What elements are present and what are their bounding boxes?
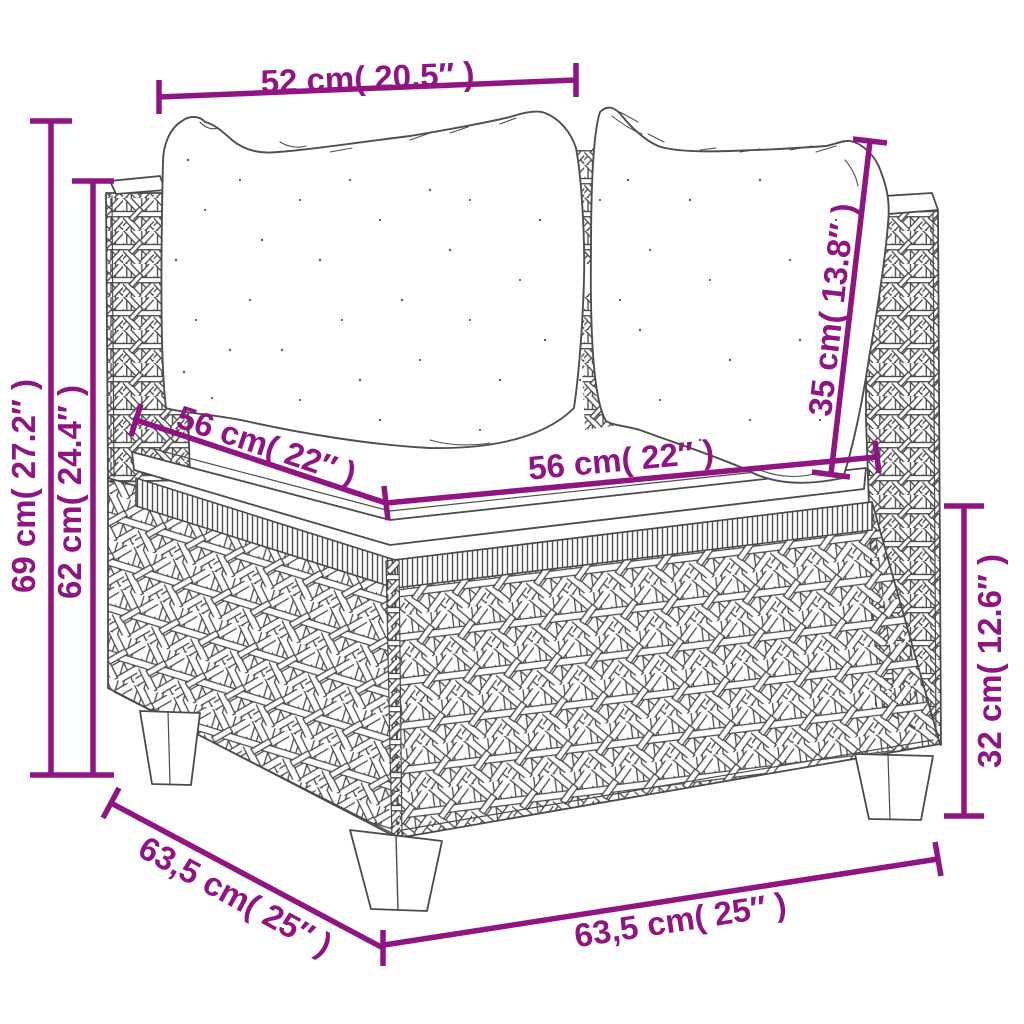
svg-text:63,5 cm( 25″ ): 63,5 cm( 25″ ) bbox=[572, 885, 789, 954]
svg-text:62 cm( 24.4″ ): 62 cm( 24.4″ ) bbox=[51, 385, 88, 599]
svg-text:69 cm( 27.2″ ): 69 cm( 27.2″ ) bbox=[5, 379, 42, 593]
svg-text:32 cm( 12.6″ ): 32 cm( 12.6″ ) bbox=[971, 554, 1008, 768]
svg-text:63,5 cm( 25″ ): 63,5 cm( 25″ ) bbox=[133, 829, 339, 964]
svg-text:52 cm( 20.5″ ): 52 cm( 20.5″ ) bbox=[260, 55, 475, 101]
